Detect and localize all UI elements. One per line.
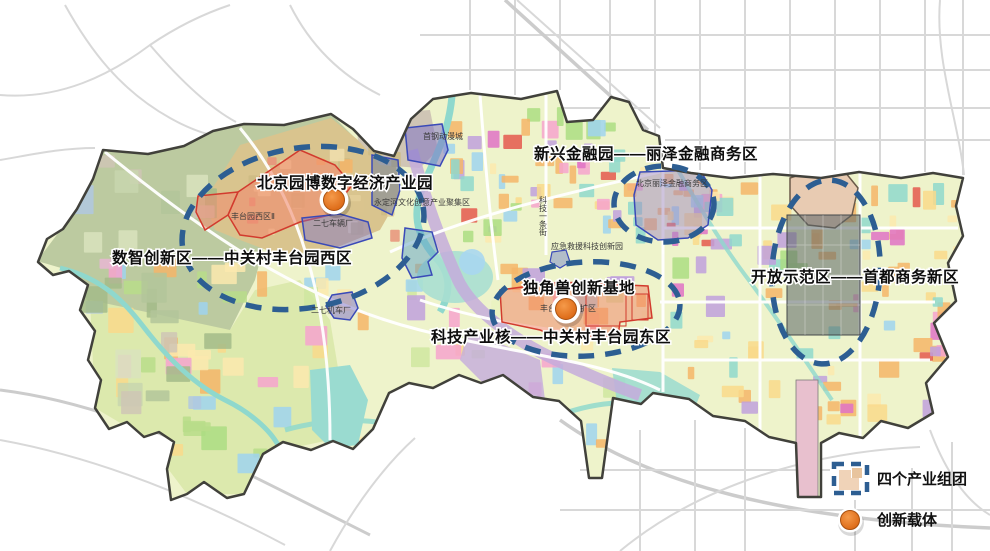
planning-map-canvas: 丰台园西区Ⅱ 二七车辆厂 二七机车厂 首钢动漫城 永定河文化创意产业聚集区 北京… <box>0 0 990 551</box>
legend-carrier-label: 创新载体 <box>876 511 938 529</box>
label-shougang-anime: 首钢动漫城 <box>423 131 463 141</box>
label-fengtai-west-ii: 丰台园西区Ⅱ <box>231 211 275 221</box>
south-pink-strip <box>796 380 818 497</box>
label-unicorn: 独角兽创新基地 <box>523 278 635 297</box>
label-cbd: 开放示范区——首都商务新区 <box>751 267 959 286</box>
label-erqi-rolling-stock: 二七车辆厂 <box>313 218 353 228</box>
label-tech-street: 科技一条街 <box>539 195 548 237</box>
label-erqi-locomotive: 二七机车厂 <box>311 305 351 315</box>
planning-map: 丰台园西区Ⅱ 二七车辆厂 二七机车厂 首钢动漫城 永定河文化创意产业聚集区 北京… <box>0 0 990 551</box>
label-emergency-park: 应急救援科技创新园 <box>551 241 623 251</box>
shougang-zone <box>405 124 448 166</box>
label-lize: 新兴金融园——丽泽金融商务区 <box>534 144 758 163</box>
label-yuanbo-park: 北京园博数字经济产业园 <box>257 173 433 192</box>
legend-cluster-label: 四个产业组团 <box>877 470 967 488</box>
label-yongding-zone: 永定河文化创意产业聚集区 <box>374 197 470 207</box>
legend-carrier-swatch <box>838 508 865 537</box>
label-lize-cbd: 北京丽泽金融商务区 <box>636 178 708 188</box>
label-east-zone: 科技产业核——中关村丰台园东区 <box>431 327 671 346</box>
legend-cluster-swatch <box>834 464 867 493</box>
label-west-zone: 数智创新区——中关村丰台园西区 <box>112 248 352 267</box>
